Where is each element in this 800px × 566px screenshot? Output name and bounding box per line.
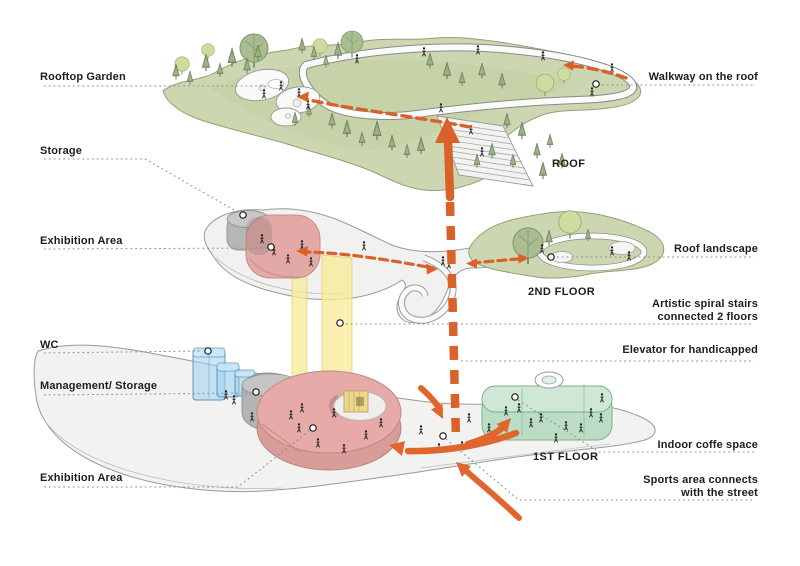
label-artistic-spiral-stairs-line1: Artistic spiral stairs [652, 298, 758, 311]
label-artistic-spiral-stairs: Artistic spiral stairs connected 2 floor… [652, 298, 758, 324]
exhibition-blob-2f [246, 215, 320, 278]
roof-landscape-blob [469, 211, 664, 278]
leader-storage [44, 159, 241, 214]
label-storage: Storage [40, 145, 82, 158]
label-sports-area-line2: with the street [643, 487, 758, 500]
label-floor-1st: 1ST FLOOR [533, 451, 598, 464]
label-sports-area: Sports area connects with the street [643, 474, 758, 500]
label-walkway-on-the-roof: Walkway on the roof [649, 71, 758, 84]
label-exhibition-area-1f: Exhibition Area [40, 472, 123, 485]
label-artistic-spiral-stairs-line2: connected 2 floors [652, 311, 758, 324]
label-exhibition-area-2f: Exhibition Area [40, 235, 123, 248]
label-elevator-handicapped: Elevator for handicapped [622, 344, 758, 357]
label-rooftop-garden: Rooftop Garden [40, 71, 126, 84]
label-sports-area-line1: Sports area connects [643, 474, 758, 487]
label-floor-2nd: 2ND FLOOR [528, 286, 595, 299]
label-floor-roof: ROOF [552, 158, 585, 171]
label-wc: WC [40, 339, 59, 352]
label-roof-landscape: Roof landscape [674, 243, 758, 256]
label-indoor-coffe-space: Indoor coffe space [658, 439, 759, 452]
spiral-stair-core [344, 391, 368, 412]
exploded-axonometric-diagram: Rooftop Garden Storage Exhibition Area W… [0, 0, 800, 566]
label-management-storage: Management/ Storage [40, 380, 157, 393]
